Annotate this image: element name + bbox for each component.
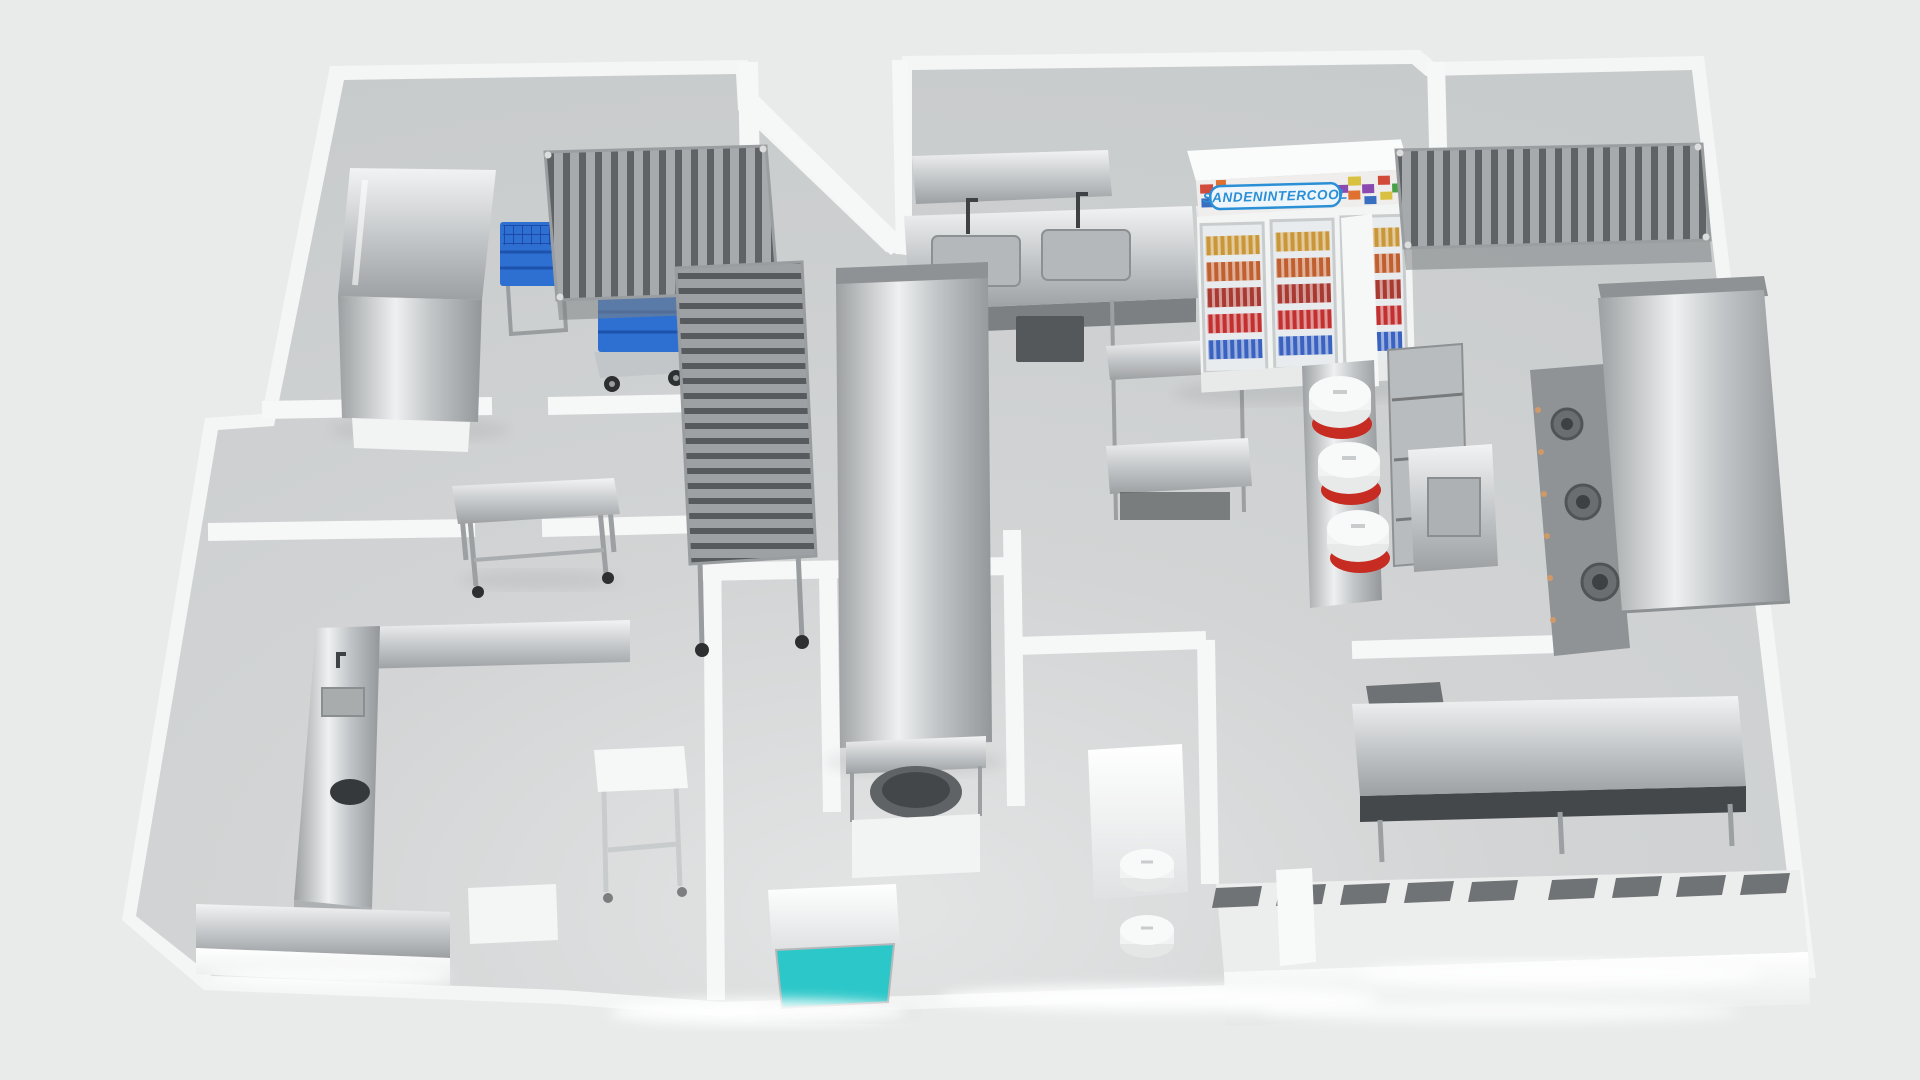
kettle-cabinet — [852, 814, 980, 878]
hood-dishwasher — [338, 168, 496, 452]
sink-bowl-2 — [1042, 230, 1130, 280]
servery-rice-cooker-1 — [1120, 849, 1174, 892]
wall-kettleroom-west — [828, 574, 832, 812]
wall-midleft-b — [542, 524, 706, 528]
servery-column — [1276, 868, 1316, 966]
wall-servery-north — [1016, 640, 1206, 646]
kitchen-sink-unit — [1408, 444, 1498, 572]
slat-rack-top-right — [1396, 144, 1712, 271]
waste-hole — [330, 779, 370, 805]
undercounter-bin-1 — [1016, 316, 1084, 362]
wall-kettleroom-east — [1012, 530, 1016, 806]
wall-servery-west — [1206, 640, 1210, 884]
teal-cabinet-front — [776, 944, 894, 1008]
render-canvas: SANDENINTERCOOL — [0, 0, 1920, 1080]
potwash-sink-bowl — [322, 688, 364, 716]
cooler-door-2 — [1271, 219, 1337, 369]
extraction-duct — [836, 278, 992, 748]
cooler-doors — [1197, 203, 1416, 393]
wall-corridor-left — [712, 528, 716, 1000]
teal-cabinet-top — [768, 884, 900, 950]
cooler-door-1 — [1201, 223, 1267, 373]
wall-midleft-a — [208, 528, 475, 532]
exhaust-hood — [1598, 276, 1790, 612]
wall-kitchen-south — [1352, 644, 1560, 650]
servery-rice-cooker-2 — [1120, 915, 1174, 958]
wall-prep-west — [900, 60, 904, 254]
kitchen-floorplan-render: SANDENINTERCOOL — [0, 0, 1920, 1080]
